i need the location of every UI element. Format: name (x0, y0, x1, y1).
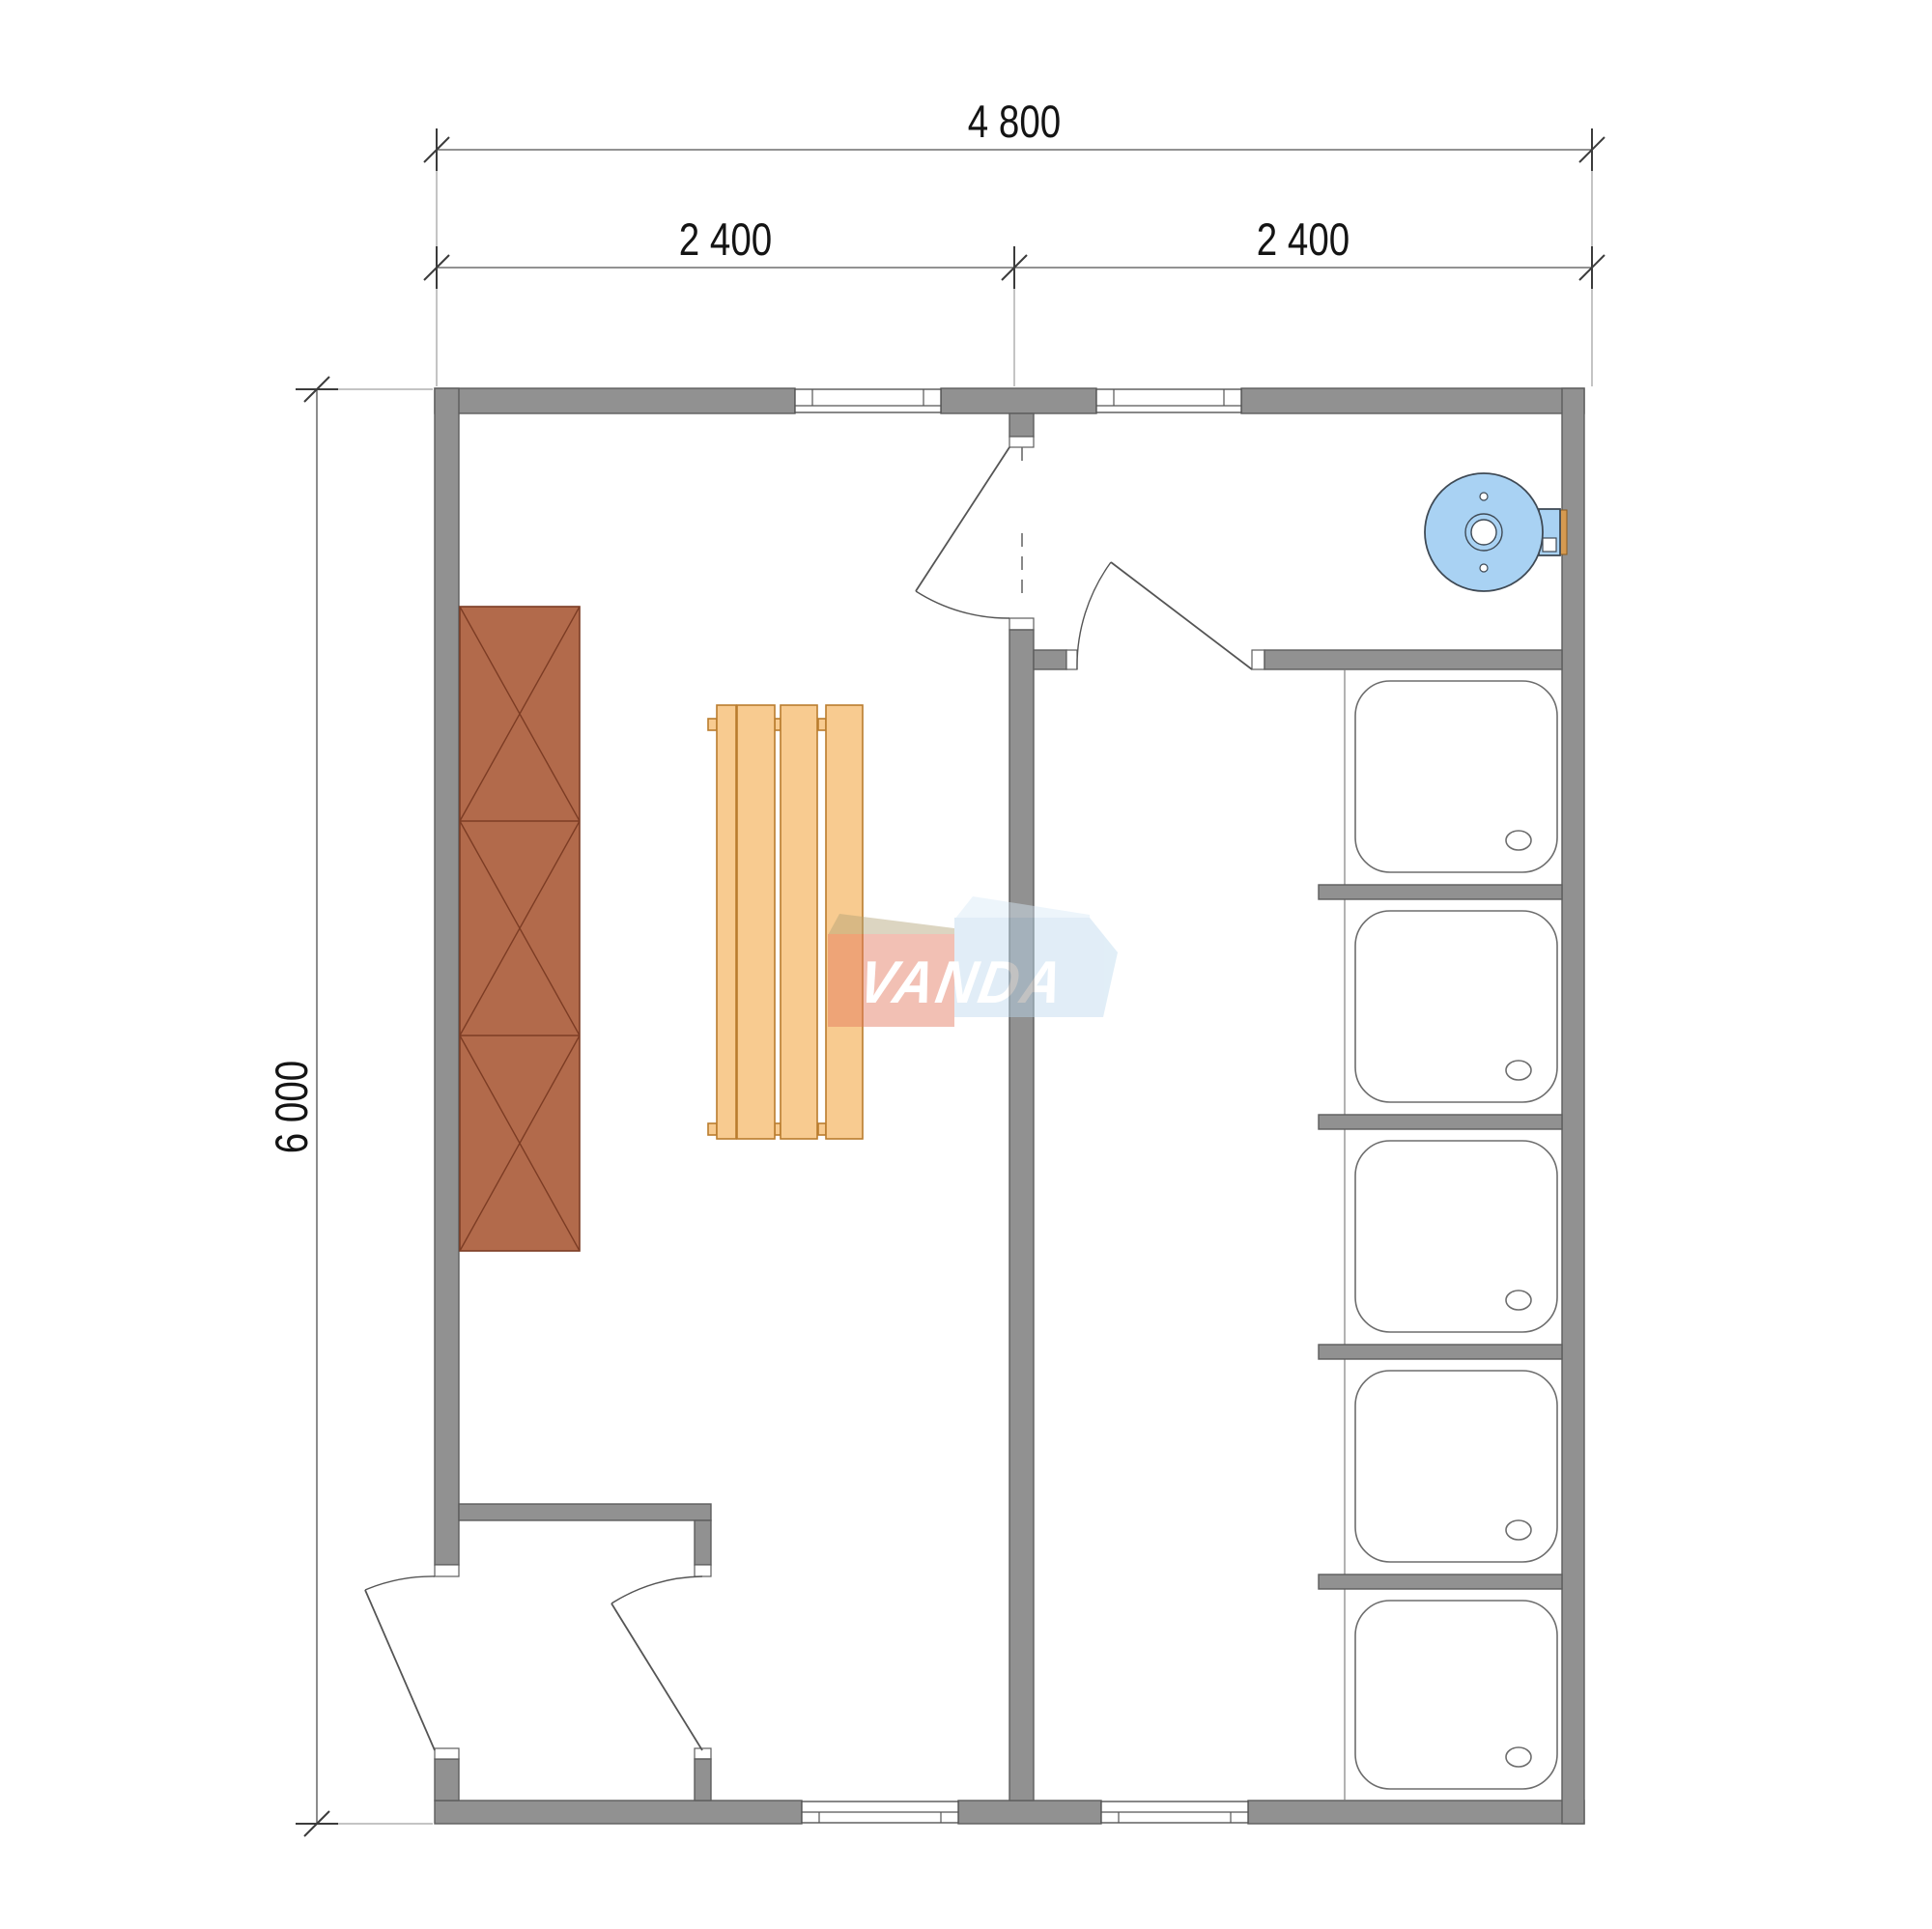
door-changing-room (916, 447, 1022, 618)
shower-drain (1506, 831, 1531, 850)
vestibule-wall-vertical (695, 1759, 711, 1801)
shower-tray (1355, 1141, 1557, 1332)
bottom-wall-segment (958, 1801, 1101, 1824)
heater-screw (1480, 564, 1488, 572)
bottom-wall-segment (435, 1801, 802, 1824)
shower-drain (1506, 1520, 1531, 1540)
window-top-left (795, 389, 941, 412)
middle-wall-segment (1009, 630, 1034, 1801)
dimension-left-total: 6 000 (267, 377, 338, 1836)
top-wall-segment (1241, 388, 1584, 413)
left-wall-segment (435, 1759, 459, 1801)
left-wall-segment (435, 388, 459, 1565)
wardrobe-lockers (460, 607, 580, 1251)
dimension-label-right-width: 2 400 (1257, 214, 1350, 265)
shower-partition (1319, 1574, 1562, 1589)
door-jamb (1066, 650, 1077, 669)
door-shower-room (1077, 562, 1252, 669)
floor-plan-canvas: 4 800 2 400 2 400 6 000 (0, 0, 1932, 1929)
bench-support (818, 1123, 826, 1135)
shower-tray (1355, 1601, 1557, 1789)
top-wall-segment (435, 388, 795, 413)
bench-support (818, 719, 826, 730)
bench-support (775, 719, 781, 730)
dimension-label-left-width: 2 400 (679, 214, 772, 265)
heater-bracket-notch (1543, 538, 1556, 552)
shower-partition (1319, 885, 1562, 899)
watermark-text: VANDA (853, 949, 1070, 1015)
shower-stalls (1319, 669, 1562, 1801)
heater-outlet (1471, 520, 1496, 545)
vestibule-wall-vertical (695, 1520, 711, 1565)
vestibule-wall-horizontal (459, 1504, 711, 1520)
middle-wall-segment (1009, 413, 1034, 437)
dimension-top-split: 2 400 2 400 (424, 214, 1605, 289)
shower-partition (1319, 1115, 1562, 1129)
shower-tray (1355, 1371, 1557, 1562)
heater-screw (1480, 493, 1488, 500)
dimension-top-total: 4 800 (424, 97, 1605, 171)
shower-partition (1319, 1345, 1562, 1359)
vanda-watermark: VANDA (828, 896, 1118, 1027)
bench-slat (717, 705, 736, 1139)
bench-support (708, 1123, 717, 1135)
door-jamb (435, 1748, 459, 1759)
shower-tray (1355, 681, 1557, 872)
bench-slat (781, 705, 817, 1139)
door-jamb (695, 1565, 711, 1576)
door-jamb (1009, 618, 1034, 630)
door-jamb (435, 1565, 459, 1576)
top-wall-segment (941, 388, 1096, 413)
watermark-red-bevel (828, 914, 954, 935)
divider-wall (1264, 650, 1562, 669)
shower-tray (1355, 911, 1557, 1102)
water-heater (1425, 473, 1567, 591)
shower-drain (1506, 1747, 1531, 1767)
dimension-label-total-width: 4 800 (968, 97, 1061, 147)
bench-support (775, 1123, 781, 1135)
bench-slat (737, 705, 775, 1139)
dimension-label-total-height: 6 000 (267, 1061, 317, 1153)
door-vestibule-inner (611, 1576, 702, 1750)
right-wall (1562, 388, 1584, 1824)
shower-drain (1506, 1291, 1531, 1310)
window-bottom-left (802, 1801, 958, 1823)
bench-support (708, 719, 717, 730)
door-jamb (1252, 650, 1264, 669)
door-entrance-exterior (365, 1576, 435, 1750)
shower-drain (1506, 1061, 1531, 1080)
bottom-wall-segment (1248, 1801, 1584, 1824)
door-jamb (1009, 437, 1034, 447)
window-bottom-right (1101, 1801, 1248, 1823)
window-top-right (1096, 389, 1241, 412)
divider-wall-stub (1034, 650, 1066, 669)
